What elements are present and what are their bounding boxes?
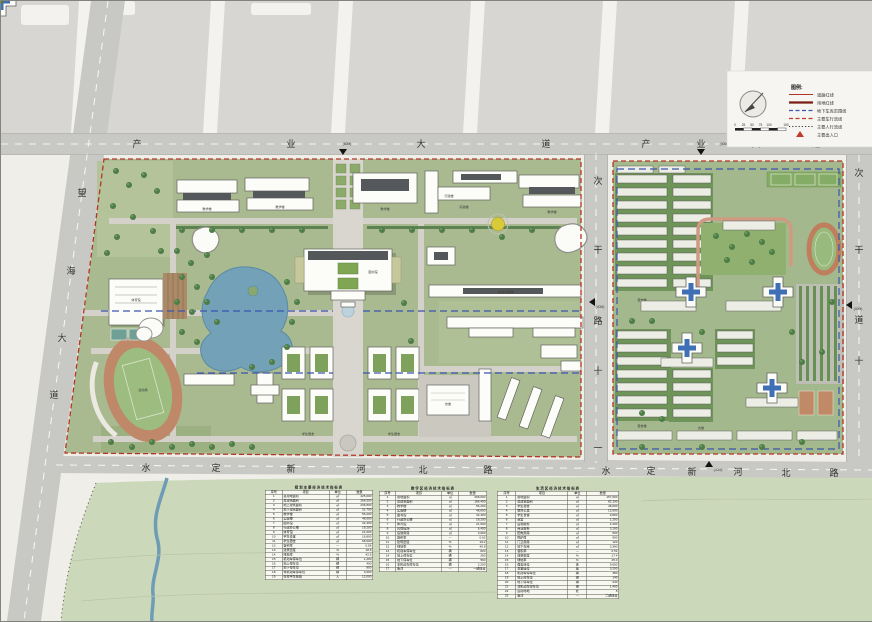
library-label: 图书馆 — [368, 269, 377, 274]
building-label: 教学楼 — [380, 206, 389, 211]
road-char: 大 — [57, 332, 66, 343]
road-char: 路 — [593, 315, 602, 326]
road-char: 道 — [541, 138, 550, 149]
road-char: 海 — [66, 265, 75, 276]
scale-tick: 150 — [783, 123, 789, 127]
road-width-note: (40M) — [596, 305, 605, 309]
scale-tick: 75 — [759, 123, 763, 127]
road-char: 产 — [641, 138, 650, 149]
road-char: 河 — [356, 463, 365, 474]
road-char: 大 — [416, 138, 425, 149]
road-char: 十 — [854, 355, 863, 366]
building-label: 实验楼 — [459, 204, 468, 209]
road-char: 路 — [483, 464, 492, 475]
road-char: 新 — [286, 463, 295, 474]
road-width-note: (40M) — [854, 307, 863, 311]
legend-label: 主要出入口 — [817, 132, 838, 139]
road-char: 定 — [646, 465, 655, 476]
road-char: 河 — [733, 466, 742, 477]
legend-label: 主要车行流线 — [817, 116, 843, 123]
road-char: 产 — [132, 138, 141, 149]
scale-tick: 0 — [734, 123, 736, 127]
lab-label: 综合实验楼 — [498, 289, 513, 294]
building-label: 教学楼 — [202, 206, 211, 211]
legend-title: 图例: — [791, 84, 803, 91]
road-char: 业 — [286, 139, 295, 149]
dorm-label: 宿舍楼 — [637, 423, 646, 428]
road-char: 道 — [49, 389, 58, 400]
road-width-note: (60M) — [343, 142, 352, 146]
table-living-indicators: 生活区经济技术指标表序号项目单位数量1用地面积㎡157,0002总建筑面积㎡82… — [497, 485, 619, 599]
legend-label: 道路红线 — [817, 92, 835, 99]
dorm-label: 学生宿舍 — [388, 431, 400, 436]
road-char: 干 — [593, 245, 602, 255]
lake — [201, 267, 293, 372]
main-campus: 运动场 体育馆 — [65, 159, 587, 457]
north-compass — [740, 91, 766, 117]
lake-island — [248, 286, 258, 296]
road-char: 干 — [854, 245, 863, 255]
road-char: 十 — [593, 365, 602, 376]
small-track — [809, 225, 839, 273]
building-label: 教学楼 — [547, 209, 556, 214]
scale-tick: 100 — [766, 123, 772, 127]
dorm-slab — [479, 369, 491, 421]
road-char: 业 — [696, 139, 705, 149]
scale-tick: 50 — [750, 123, 754, 127]
auditorium-west — [192, 227, 219, 253]
road-char: 道 — [854, 314, 863, 325]
central-garden — [701, 223, 786, 275]
road-char: 定 — [211, 462, 220, 473]
legend-label: 地下车库范围线 — [817, 108, 847, 115]
stadium-label: 运动场 — [138, 387, 147, 392]
table-teaching-indicators: 教学区经济技术指标表序号项目单位数量1用地面积㎡268,0002总建筑面积㎡18… — [379, 485, 487, 572]
building-label: 教学楼 — [275, 204, 284, 209]
road-char: 次 — [593, 175, 602, 186]
road-char: 路 — [829, 467, 838, 478]
service-building — [184, 374, 234, 385]
master-plan-canvas: 运动场 体育馆 — [0, 0, 872, 622]
table-overall-indicators: 规划主要经济技术指标表序号项目单位数量1总用地面积㎡425,0002总建筑面积㎡… — [265, 484, 373, 580]
canteen-label: 食堂 — [445, 401, 451, 406]
road-char: 水 — [141, 462, 150, 473]
road-width-note: (40M) — [714, 468, 723, 472]
scale-tick: 25 — [742, 123, 746, 127]
road-char: 新 — [687, 466, 696, 477]
canteen-label: 食堂 — [698, 425, 704, 430]
small-wing — [251, 385, 279, 395]
road-char: 次 — [854, 167, 863, 178]
gym-label: 体育馆 — [131, 297, 140, 302]
dorm-label: 学生宿舍 — [302, 431, 314, 436]
terraced-plots — [163, 273, 187, 319]
road-char: 一 — [593, 443, 602, 453]
road-char: 望 — [77, 187, 86, 198]
road-char: 北 — [418, 465, 427, 475]
canteen-building — [427, 385, 469, 415]
legend-label: 主要人行流线 — [817, 124, 843, 131]
auditorium-east — [555, 224, 587, 253]
round-pavilion — [492, 218, 505, 231]
road-char: 北 — [781, 468, 790, 478]
legend-panel: 图例: 道路红线 用地红线 地下车库范围线 主要车行流线 主要人行流线 主要出入… — [727, 71, 872, 147]
building-label: 行政楼 — [444, 193, 453, 198]
road-char: 水 — [601, 465, 610, 476]
legend-label: 用地红线 — [817, 100, 835, 107]
